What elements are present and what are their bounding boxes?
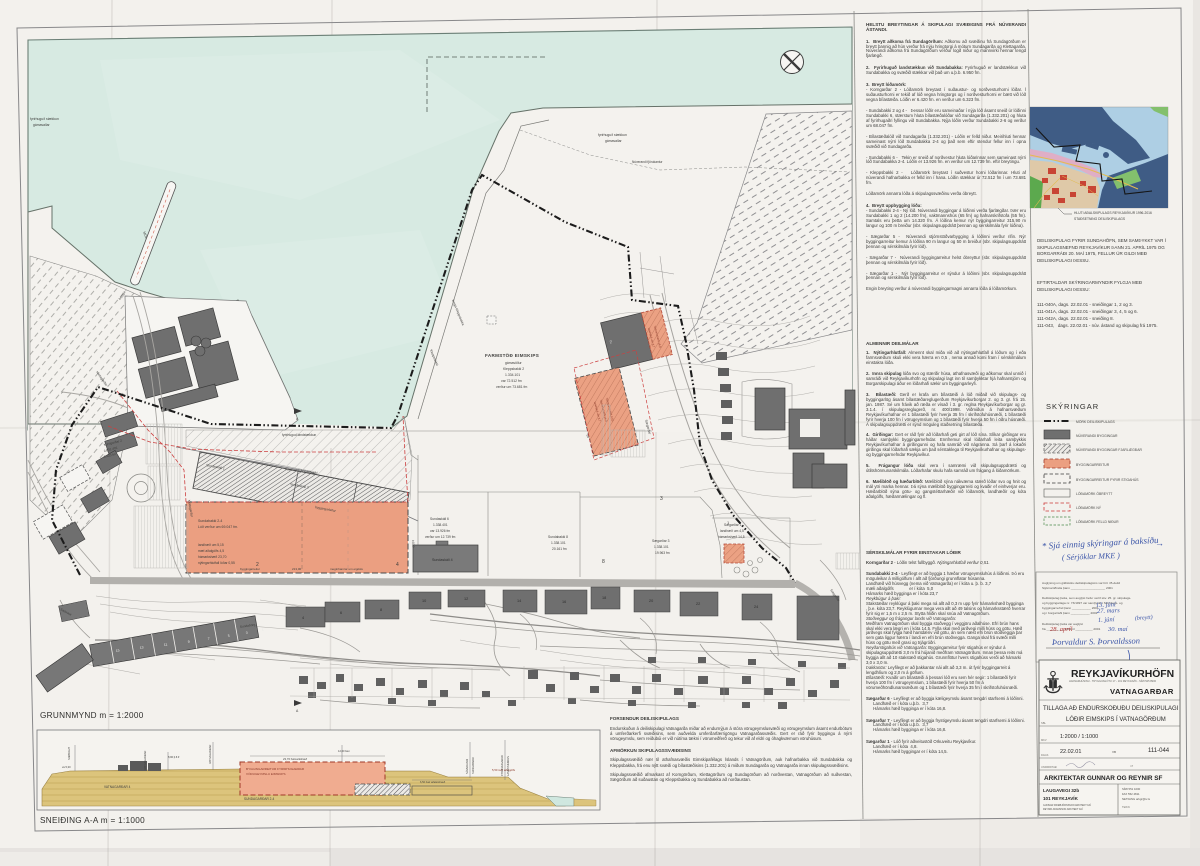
svg-text:Lóð verður um 69.047 fm.: Lóð verður um 69.047 fm. (198, 524, 238, 529)
svg-text:SKÝRINGAR: SKÝRINGAR (1046, 402, 1099, 411)
svg-text:og í borgarráði þann _________: og í borgarráði þann ___________ 2001 (1042, 610, 1098, 615)
svg-text:12,00 bæi: 12,00 bæi (338, 749, 350, 753)
svg-text:GUNNAR FRIÐBJÖRNSSON ARKITEKT: GUNNAR FRIÐBJÖRNSSON ARKITEKT FAÍ (1043, 804, 1091, 807)
svg-text:NÚVERANDI BYGGINGAR: NÚVERANDI BYGGINGAR (1076, 433, 1118, 438)
svg-text:1.338.101: 1.338.101 (551, 541, 566, 545)
svg-text:BYGGINGARREITUR FYRIRHUGAÐRAR: BYGGINGARREITUR FYRIRHUGAÐRAR (246, 767, 305, 771)
svg-text:1:2000 / 1:1000: 1:2000 / 1:1000 (1060, 734, 1098, 740)
svg-text:hámarkshæð 23,70: hámarkshæð 23,70 (198, 554, 227, 559)
svg-text:6: 6 (340, 611, 342, 615)
svg-text:meginhamrar um eigöslu: meginhamrar um eigöslu (330, 567, 363, 571)
svg-text:byggingarnefnd þann __________: byggingarnefnd þann ___________ 2001 (1042, 606, 1099, 610)
svg-text:23,70 hámarkshæð: 23,70 hámarkshæð (283, 756, 308, 761)
svg-text:24: 24 (754, 605, 758, 609)
svg-text:var 13.926 fm: var 13.926 fm (430, 529, 450, 533)
svg-text:NÚVERANDI BYGGINGAR FJARLÆGÐAR: NÚVERANDI BYGGINGAR FJARLÆGÐAR (1076, 447, 1142, 452)
svg-text:LÓÐAMÖRK FELLD NIÐUR: LÓÐAMÖRK FELLD NIÐUR (1076, 519, 1119, 524)
svg-text:MÖRK DEILISKIPULAGS: MÖRK DEILISKIPULAGS (1076, 420, 1116, 424)
svg-text:BYGGINGARREITUR FYRIR STIGAHÚS: BYGGINGARREITUR FYRIR STIGAHÚS (1076, 477, 1139, 482)
svg-text:va 5,30: va 5,30 (62, 765, 71, 769)
svg-text:gámavöllur: gámavöllur (505, 361, 522, 365)
svg-text:SUNDABAKKI: SUNDABAKKI (471, 757, 475, 774)
svg-text:REYNIR ADAMSSON ARKITE: REYNIR ADAMSSON ARKITEKT FAÍ (1043, 808, 1083, 811)
svg-text:Sundabakki 2-4: Sundabakki 2-4 (198, 519, 222, 523)
svg-text:30. maí: 30. maí (1107, 626, 1129, 633)
svg-text:19.963 fm: 19.963 fm (655, 551, 670, 555)
svg-text:1. júní: 1. júní (1098, 616, 1116, 624)
svg-text:160,0: 160,0 (411, 540, 416, 548)
svg-text:MKV: MKV (1041, 738, 1047, 742)
svg-text:verður um 12.739 fm: verður um 12.739 fm (425, 534, 456, 539)
svg-text:SBL: SBL (1041, 721, 1046, 725)
svg-text:landhæð um 5,15: landhæð um 5,15 (198, 542, 224, 547)
svg-text:1.338.401: 1.338.401 (433, 523, 448, 527)
svg-text:1.338.101: 1.338.101 (654, 545, 669, 549)
svg-text:LANDSTÆKKUN: LANDSTÆKKUN (506, 756, 510, 776)
svg-text:20.161 fm: 20.161 fm (552, 547, 567, 551)
svg-text:gámavallar: gámavallar (33, 123, 50, 127)
svg-text:VATNAGARÐAR 4: VATNAGARÐAR 4 (104, 785, 131, 789)
svg-text:8: 8 (380, 608, 382, 612)
svg-text:hámarkshæð 14,5: hámarkshæð 14,5 (718, 534, 745, 539)
svg-text:101 REYKJAVÍK: 101 REYKJAVÍK (1043, 794, 1079, 801)
svg-text:LAUGAVEGI 32b: LAUGAVEGI 32b (1043, 788, 1079, 793)
svg-text:4: 4 (302, 616, 304, 620)
svg-text:213,00: 213,00 (292, 567, 302, 571)
svg-text:SÆBRAUT: SÆBRAUT (67, 746, 71, 760)
svg-text:TILLAGA AÐ ENDURSKOÐUÐU DEILIS: TILLAGA AÐ ENDURSKOÐUÐU DEILISKIPULAGI (1043, 706, 1179, 712)
svg-text:NETFANG arkgr@tv.is: NETFANG arkgr@tv.is (1122, 797, 1151, 801)
svg-text:18: 18 (602, 596, 606, 600)
svg-text:GRUNNMYND m = 1:2000: GRUNNMYND m = 1:2000 (40, 711, 144, 720)
svg-text:22: 22 (696, 602, 700, 606)
svg-text:Sundabakki 8: Sundabakki 8 (548, 535, 568, 539)
svg-text:UNDIRRITAÐ: UNDIRRITAÐ (1041, 765, 1057, 769)
svg-text:ARKITEKTAR GUNNAR OG REYNIR SF: ARKITEKTAR GUNNAR OG REYNIR SF (1044, 775, 1163, 782)
svg-text:Auglýsing um gildistöku deilis: Auglýsing um gildistöku deiliskipulagsin… (1042, 581, 1120, 585)
svg-text:Sundaskáli 4: Sundaskáli 4 (432, 558, 453, 562)
svg-text:SNEIÐING A-A m = 1:1000: SNEIÐING A-A m = 1:1000 (40, 816, 145, 825)
svg-text:landhæð um 4,5: landhæð um 4,5 (720, 528, 744, 533)
svg-text:VATNAGARÐAR: VATNAGARÐAR (208, 745, 212, 764)
svg-text:1.334.101: 1.334.101 (505, 373, 520, 377)
svg-text:8,90 þ.fl.fr: 8,90 þ.fl.fr (168, 755, 180, 759)
svg-text:mæl aðalgólfs 4,5: mæl aðalgólfs 4,5 (198, 548, 224, 553)
svg-text:FYRIRHUGAÐUR: FYRIRHUGAÐUR (500, 755, 504, 776)
svg-text:VB: VB (1112, 750, 1116, 754)
svg-text:nýtingarhlutfall lóðar 0,55: nýtingarhlutfall lóðar 0,55 (198, 560, 235, 565)
svg-text:FARMSTÖÐ EIMSKIPS: FARMSTÖÐ EIMSKIPS (485, 352, 539, 358)
svg-text:VÖRUGEYMSLU EIMSKIPS: VÖRUGEYMSLU EIMSKIPS (246, 772, 286, 776)
svg-text:LÓÐAMÖRK NÝ: LÓÐAMÖRK NÝ (1076, 505, 1102, 510)
svg-text:8: 8 (602, 559, 605, 565)
svg-text:→: → (1155, 538, 1164, 548)
svg-text:REYKJAVÍKURHÖFN: REYKJAVÍKURHÖFN (1071, 667, 1174, 680)
svg-text:Sægarðar 3: Sægarðar 3 (652, 538, 670, 543)
svg-text:Sundaskáli 6: Sundaskáli 6 (430, 517, 449, 521)
svg-text:10: 10 (422, 599, 426, 603)
svg-text:verður um 73.681 fm: verður um 73.681 fm (496, 384, 527, 389)
svg-text:byggingarreitur: byggingarreitur (240, 567, 260, 571)
svg-text:28. apríl: 28. apríl (1050, 626, 1073, 633)
svg-text:HLUTI AÐALSKIPULAGS REYKJAVÍKU: HLUTI AÐALSKIPULAGS REYKJAVÍKUR 1996-201… (1074, 211, 1152, 215)
svg-text:Núverandi fjörukantur: Núverandi fjörukantur (632, 160, 663, 164)
svg-text:Þorvaldur S. Þorvaldsson: Þorvaldur S. Þorvaldsson (1051, 635, 1140, 647)
svg-text:LÓÐIR EIMSKIPS Í VATNAGÖRÐUM: LÓÐIR EIMSKIPS Í VATNAGÖRÐUM (1066, 716, 1166, 723)
svg-text:BYGGINGARREITUR: BYGGINGARREITUR (1076, 463, 1110, 467)
svg-text:gámavallar: gámavallar (605, 139, 622, 143)
svg-text:Deiliskipulag þetta, sem auglý: Deiliskipulag þetta, sem auglýst hefur v… (1042, 595, 1131, 600)
svg-text:4: 4 (396, 562, 399, 568)
svg-text:27. mars: 27. mars (1097, 607, 1120, 615)
svg-text:111-044: 111-044 (1148, 748, 1170, 754)
svg-text:22.02.01: 22.02.01 (1060, 749, 1081, 755)
svg-text:TEIKN: TEIKN (1122, 805, 1130, 809)
svg-text:20: 20 (649, 599, 653, 603)
svg-text:VATNAGARÐAR: VATNAGARÐAR (143, 751, 147, 770)
svg-text:nT: nT (1130, 764, 1133, 768)
svg-text:LÓÐAMÖRK ÓBREYTT: LÓÐAMÖRK ÓBREYTT (1076, 491, 1112, 496)
svg-text:STAÐSETNING DEILISKIPULAGS: STAÐSETNING DEILISKIPULAGS (1074, 217, 1126, 221)
svg-text:FAX 552 4811: FAX 552 4811 (1122, 792, 1140, 796)
svg-text:14: 14 (517, 599, 521, 603)
svg-text:fyrirhuguð stækkun: fyrirhuguð stækkun (30, 116, 59, 121)
svg-text:fyrirhuguð stækkun: fyrirhuguð stækkun (598, 132, 627, 137)
svg-text:fyrirhugud landstækkun: fyrirhugud landstækkun (282, 433, 316, 437)
svg-text:DAGS: DAGS (1041, 753, 1049, 757)
svg-text:Stjórnartíðinda þann _________: Stjórnartíðinda þann ___________________… (1042, 585, 1113, 590)
svg-text:Kleppsbakki 2: Kleppsbakki 2 (503, 367, 524, 371)
svg-text:SUNDAGARÐAR 2-4: SUNDAGARÐAR 2-4 (244, 797, 275, 801)
svg-text:3: 3 (660, 496, 663, 502)
svg-text:VATNAGARÐAR: VATNAGARÐAR (1110, 687, 1174, 696)
svg-text:var 72.512 fm: var 72.512 fm (501, 379, 522, 383)
svg-text:SÍMI 551 1000: SÍMI 551 1000 (1122, 787, 1141, 791)
svg-text:16: 16 (562, 600, 566, 604)
svg-text:12: 12 (464, 597, 468, 601)
svg-text:(breytt): (breytt) (1135, 614, 1153, 622)
